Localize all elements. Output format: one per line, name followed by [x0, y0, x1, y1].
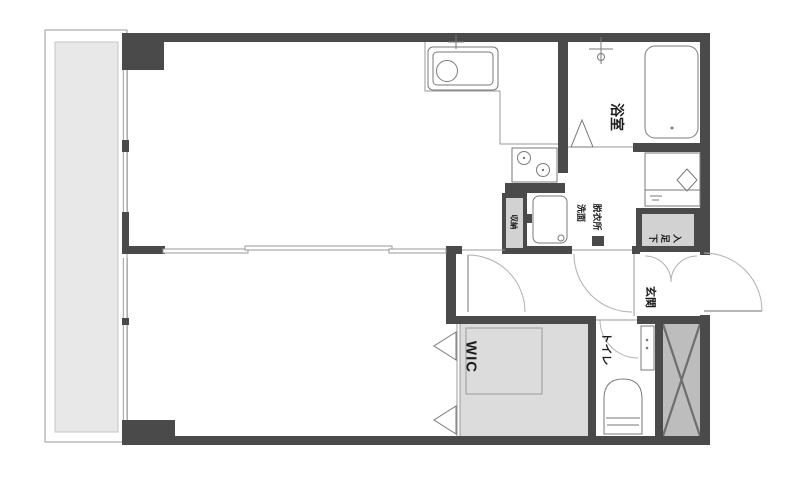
- bathroom-label: 浴室: [609, 103, 625, 131]
- folding-door-icon: [434, 406, 456, 434]
- balcony: [55, 42, 118, 432]
- walls: [122, 33, 710, 445]
- gas-stove-icon: [512, 148, 557, 182]
- vanity-sink-icon: [645, 153, 700, 206]
- bathtub-icon: [645, 46, 698, 138]
- washroom-label-line2: 脱衣所: [592, 203, 603, 230]
- washing-machine-pan-icon: [533, 196, 567, 243]
- sliding-partition-icon: [163, 246, 446, 253]
- shoe-cabinet-label: 下足入: [648, 233, 682, 246]
- folding-door-icon: [434, 332, 456, 360]
- washroom-label-line1: 洗面: [576, 204, 587, 222]
- toilet-label: トイレ: [600, 333, 613, 366]
- kitchen-sink-icon: [428, 47, 498, 90]
- storage-label: 収納: [510, 215, 520, 230]
- entrance-label: 玄関: [644, 286, 658, 308]
- wic-label: WIC: [463, 341, 480, 373]
- floor-plan: 浴室 洗面 脱衣所 トイレ 玄関 WIC 下足入 収納: [0, 0, 787, 488]
- folding-door-icon: [571, 120, 593, 147]
- floor-plan-canvas: 浴室 洗面 脱衣所 トイレ 玄関 WIC 下足入 収納: [0, 0, 787, 488]
